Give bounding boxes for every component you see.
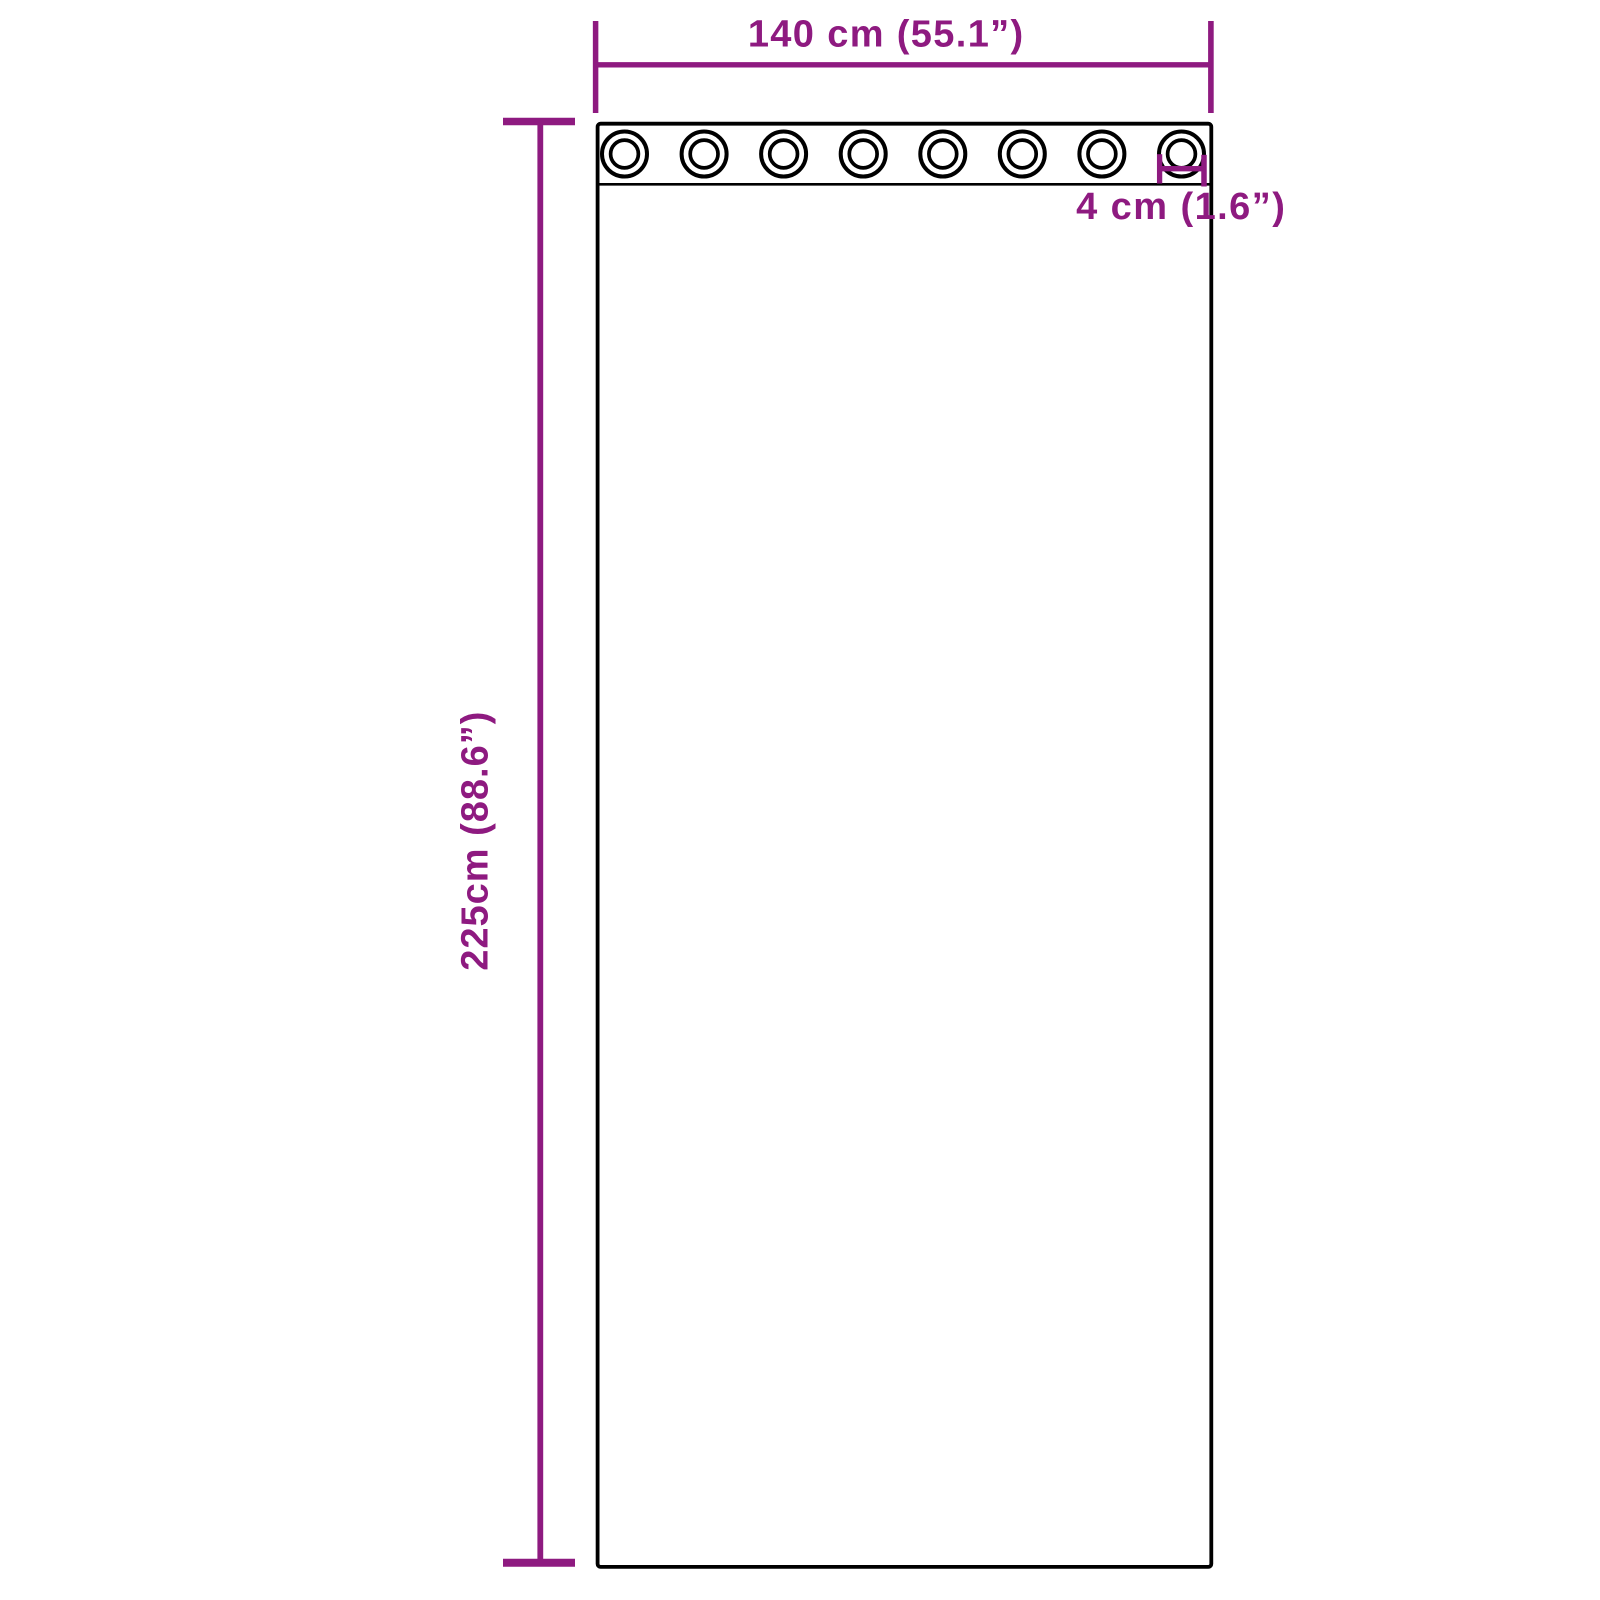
- svg-text:4 cm (1.6”): 4 cm (1.6”): [1076, 186, 1286, 228]
- svg-text:225cm (88.6”): 225cm (88.6”): [455, 711, 497, 971]
- svg-text:140 cm (55.1”): 140 cm (55.1”): [748, 14, 1025, 56]
